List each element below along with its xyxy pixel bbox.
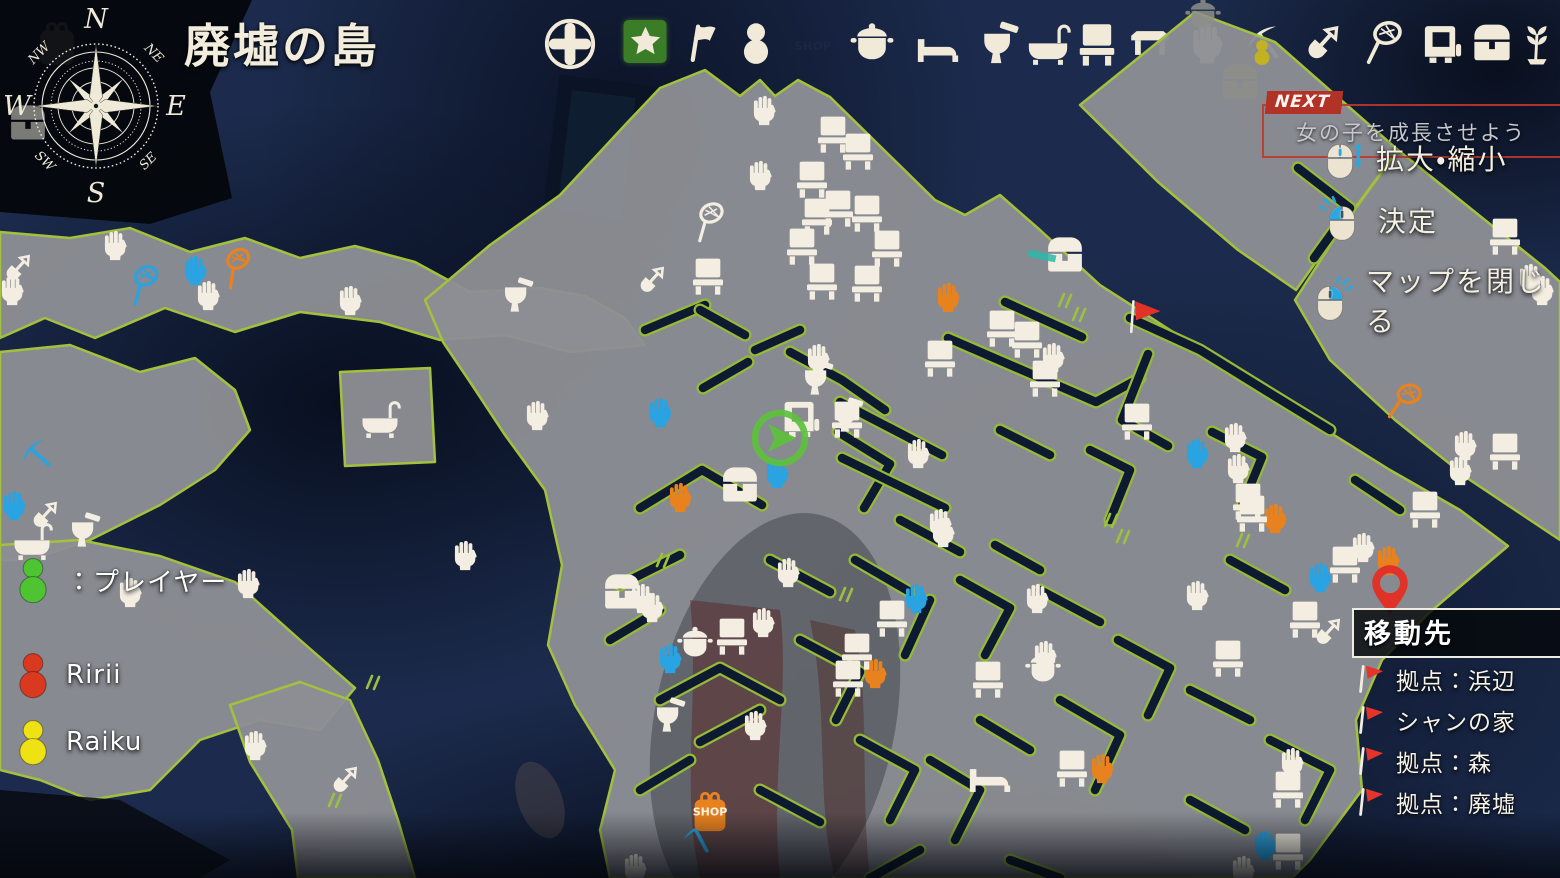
compass-n: N <box>83 4 109 35</box>
quest-next-tag: NEXT <box>1265 91 1343 114</box>
legend-label: Ririi <box>66 660 121 690</box>
legend-ririi: Ririi <box>8 645 121 705</box>
destination-item[interactable]: 拠点：廃墟 <box>1358 781 1560 822</box>
destination-item[interactable]: 拠点：浜辺 <box>1358 658 1560 699</box>
compass-w: W <box>4 91 33 122</box>
control-hint-zoom: 拡大・縮小 <box>1316 134 1508 182</box>
mouse-wheel-icon <box>1316 134 1368 182</box>
destination-label: シャンの家 <box>1396 703 1516 737</box>
destination-item[interactable]: シャンの家 <box>1358 699 1560 740</box>
destination-item[interactable]: 拠点：森 <box>1358 740 1560 781</box>
legend-player: ：プレイヤー <box>8 550 227 610</box>
control-hint-label: 決定 <box>1378 200 1438 240</box>
destination-label: 拠点：廃墟 <box>1396 785 1516 819</box>
player-marker-icon <box>8 550 58 610</box>
red-flag-icon <box>1358 743 1386 779</box>
control-hint-label: 拡大・縮小 <box>1376 138 1508 178</box>
ririi-marker-icon <box>8 645 58 705</box>
marker-gourd <box>1255 40 1270 65</box>
map-title: 廃墟の島 <box>184 10 380 76</box>
red-flag-icon <box>1358 661 1386 697</box>
destination-panel: 移動先 拠点：浜辺シャンの家拠点：森拠点：廃墟 <box>1352 608 1560 822</box>
compass-sw: SW <box>31 148 59 176</box>
mouse-right-click-icon <box>1306 276 1358 324</box>
compass-rose: NESWNWNESWSE <box>4 2 194 217</box>
compass-ne: NE <box>140 40 166 66</box>
legend-label: Raiku <box>66 727 142 757</box>
destination-title: 移動先 <box>1352 608 1560 658</box>
legend-label: ：プレイヤー <box>66 562 227 599</box>
red-flag-icon <box>1358 784 1386 820</box>
red-flag-icon <box>1358 702 1386 738</box>
compass-e: E <box>165 91 186 122</box>
mouse-left-click-icon <box>1318 196 1370 244</box>
control-hint-label: マップを閉じる <box>1366 260 1560 340</box>
destination-label: 拠点：森 <box>1396 744 1492 778</box>
raiku-marker-icon <box>8 712 58 772</box>
compass-se: SE <box>137 149 161 173</box>
svg-text:SHOP: SHOP <box>693 806 728 819</box>
marker-hand <box>455 541 477 570</box>
legend-raiku: Raiku <box>8 712 142 772</box>
destination-label: 拠点：浜辺 <box>1396 662 1516 696</box>
control-hint-close-map: マップを閉じる <box>1306 260 1560 340</box>
compass-s: S <box>87 178 106 209</box>
control-hint-confirm: 決定 <box>1318 196 1438 244</box>
